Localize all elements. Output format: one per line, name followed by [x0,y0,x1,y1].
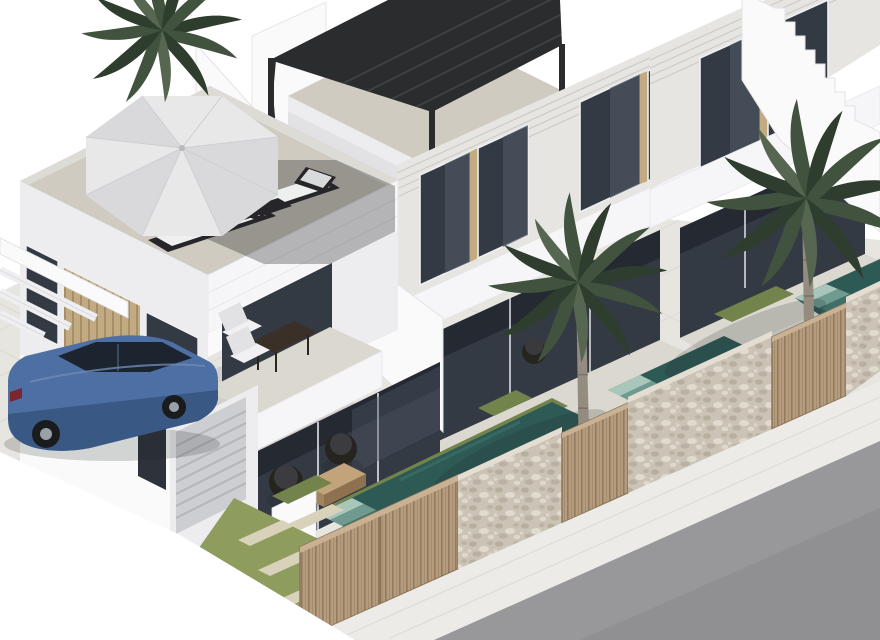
timber-mullion [470,148,478,262]
timber-mullion [640,71,648,184]
villa-render-image [0,0,880,640]
blue-car [4,335,220,461]
parasol [86,96,278,236]
